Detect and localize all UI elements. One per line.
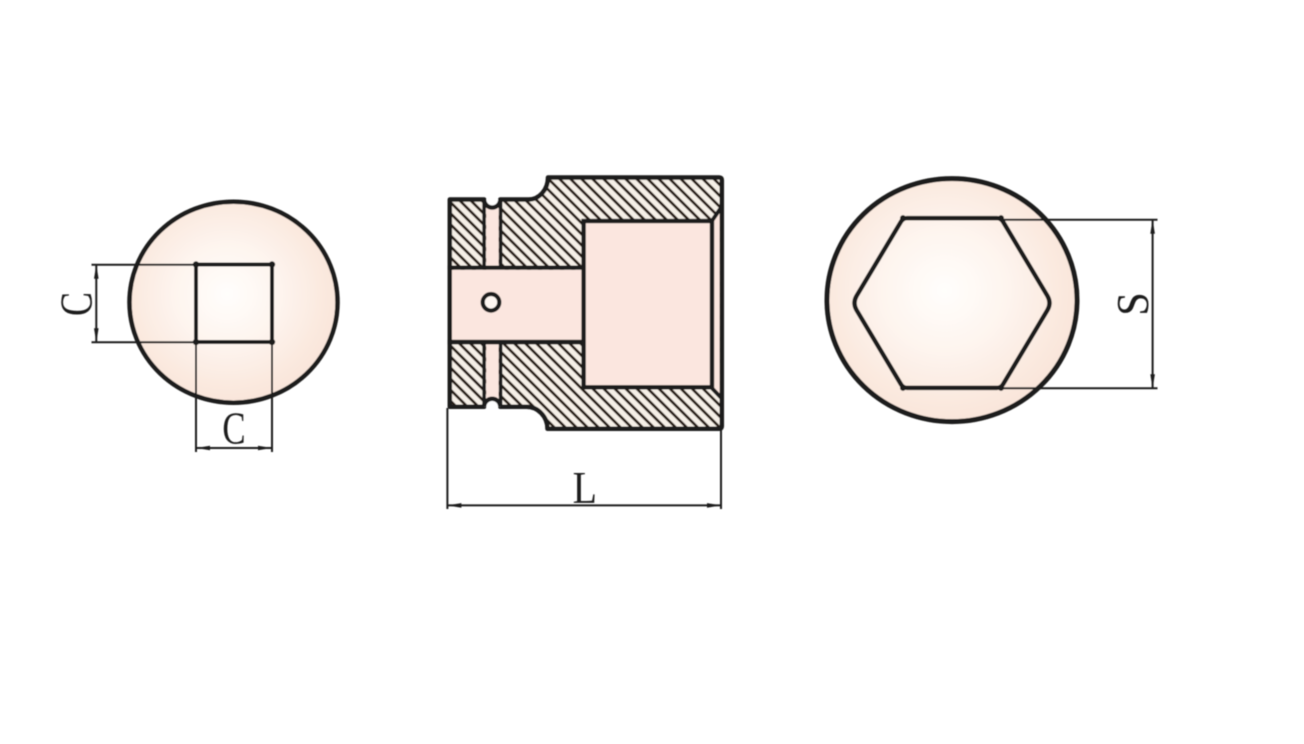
svg-text:C: C: [222, 403, 245, 454]
svg-text:S: S: [1108, 292, 1159, 316]
svg-text:L: L: [573, 463, 597, 513]
svg-text:C: C: [50, 292, 101, 316]
